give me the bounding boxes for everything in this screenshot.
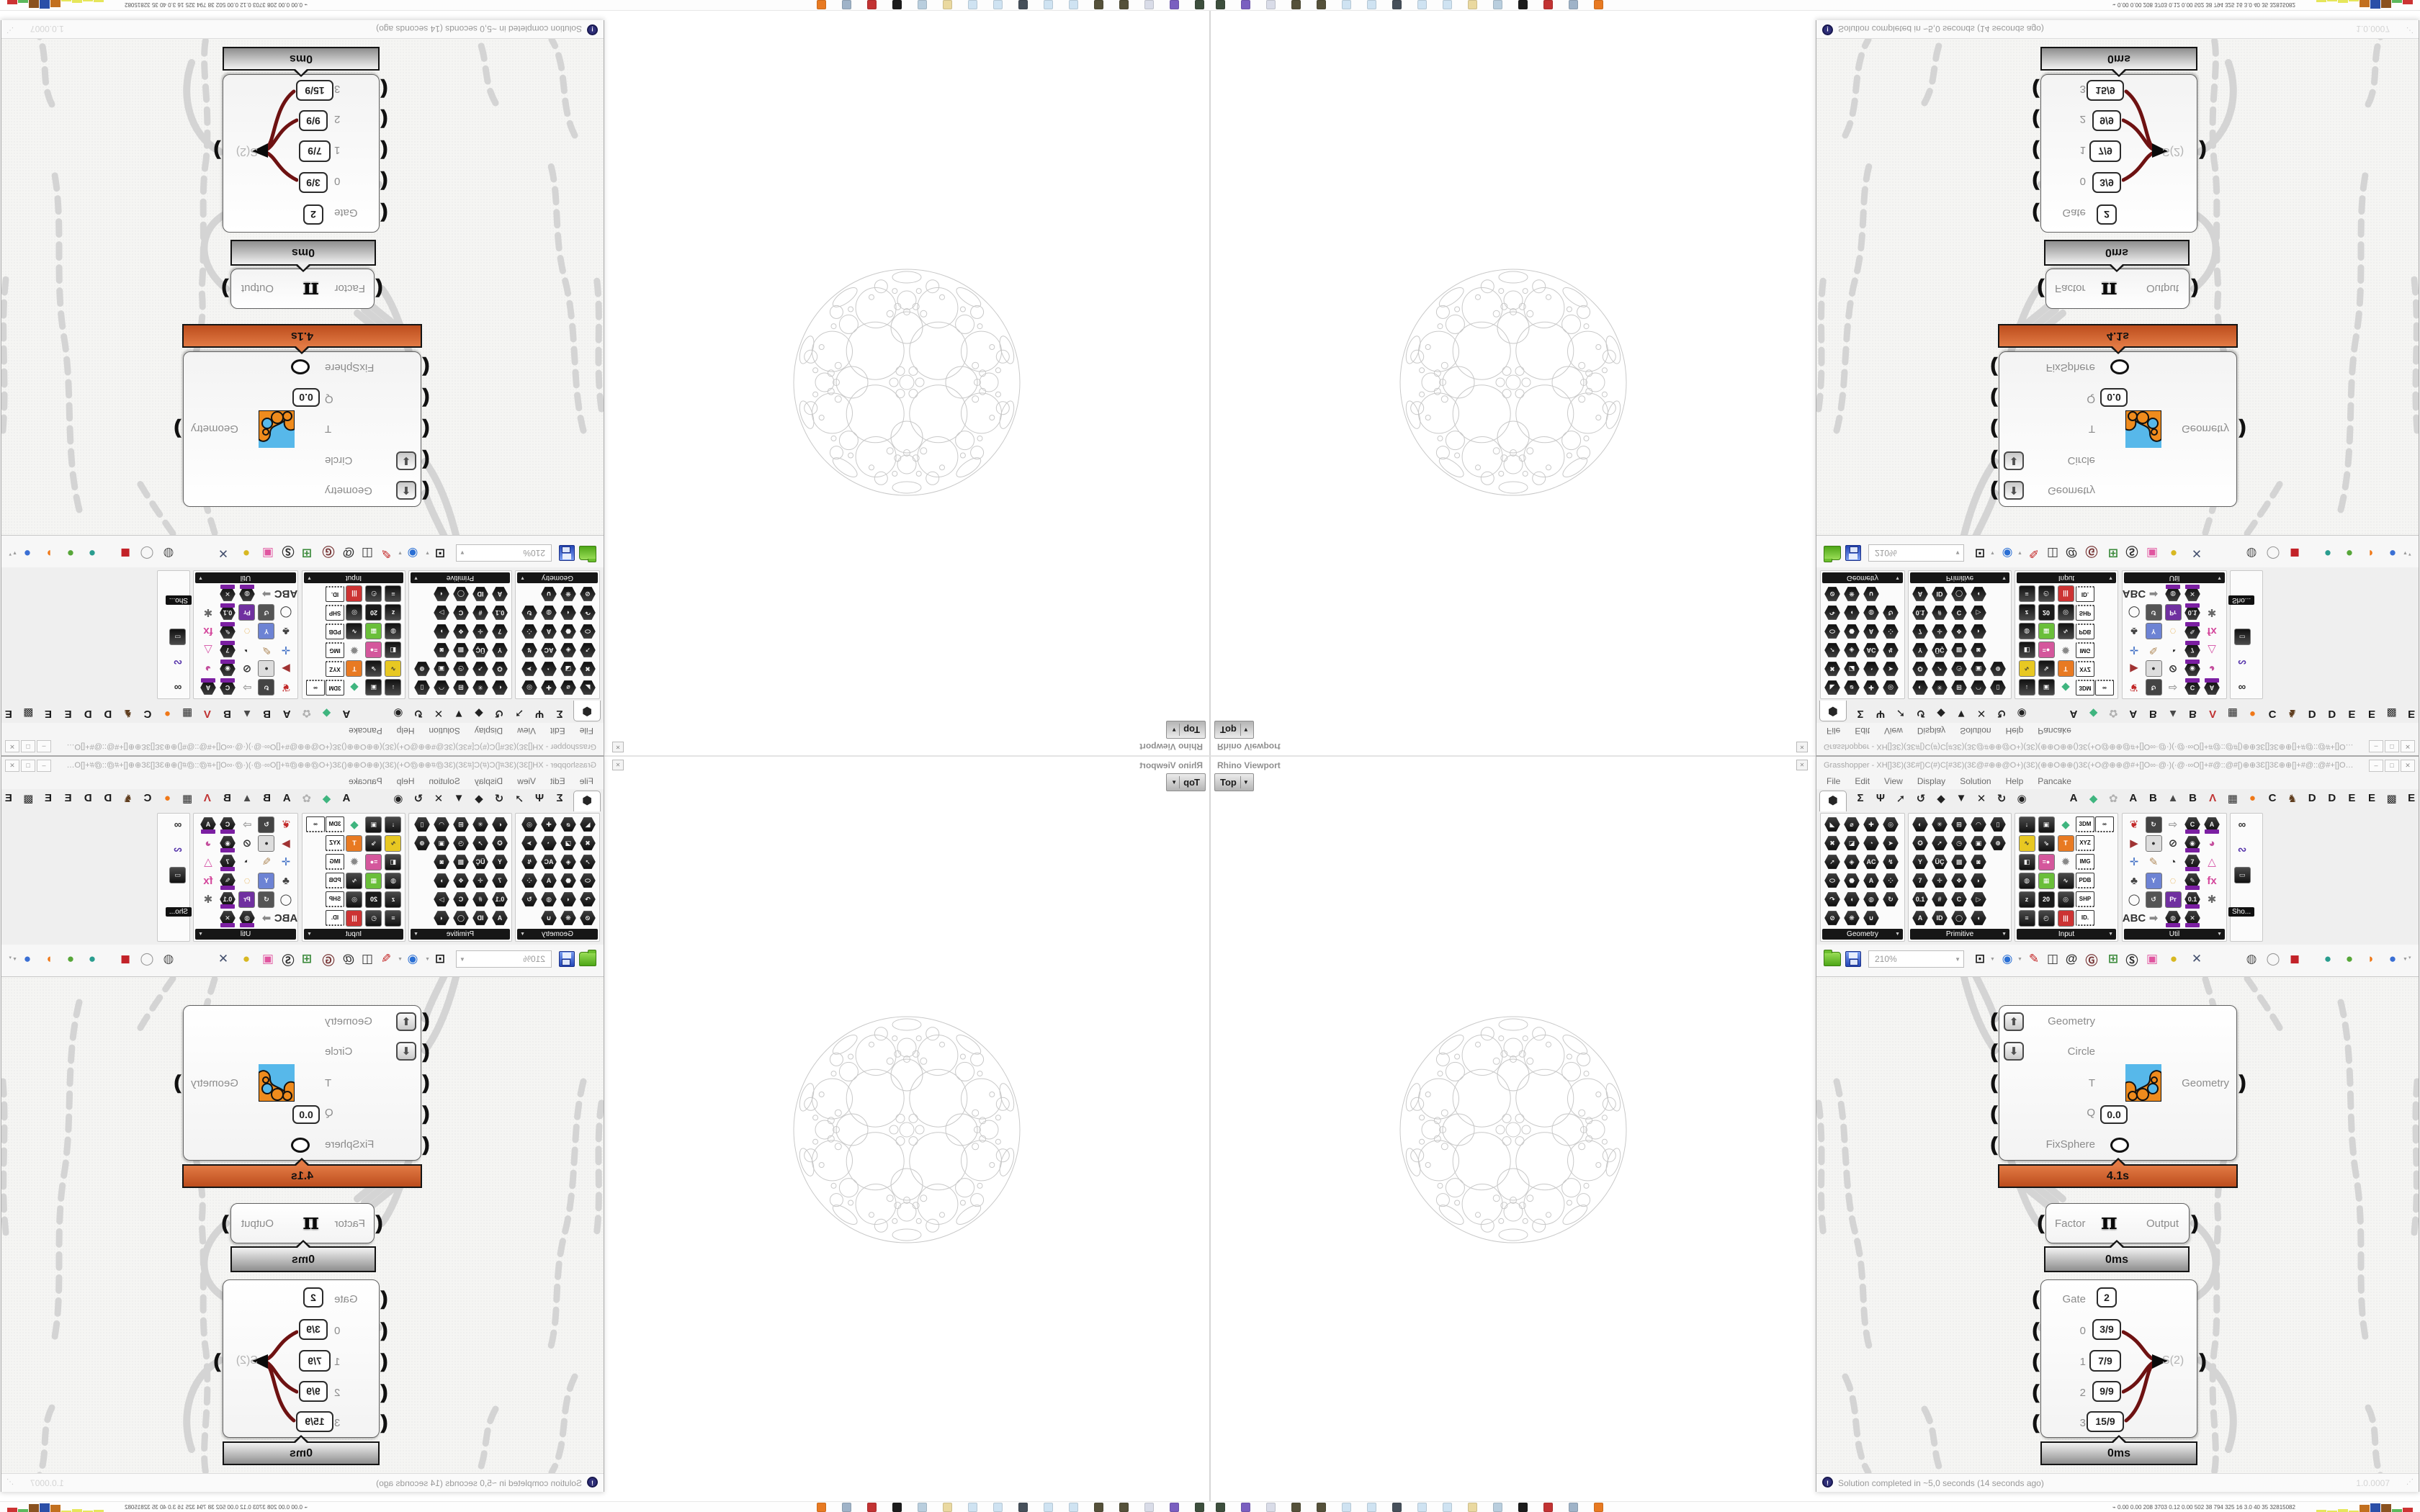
gate-input-jack-0[interactable]: ( bbox=[2033, 174, 2039, 191]
component-icon[interactable]: ❋ bbox=[559, 909, 578, 927]
display-teal-icon[interactable]: ● bbox=[84, 544, 101, 562]
component-icon[interactable]: 3DM bbox=[2076, 678, 2094, 697]
component-icon[interactable]: ≡ bbox=[384, 585, 403, 603]
input-jack-q[interactable]: ( bbox=[423, 390, 429, 408]
gate-output-jack[interactable]: ) bbox=[2200, 1352, 2206, 1369]
component-icon[interactable]: C bbox=[2183, 678, 2202, 697]
component-icon[interactable]: ◪ bbox=[1842, 660, 1861, 678]
grasshopper-canvas[interactable]: ( ( ( ( ( ⬆ ⬇ Geometry Circle T Q FixSph… bbox=[1816, 38, 2419, 536]
component-icon[interactable]: ♣ bbox=[2125, 622, 2143, 641]
component-icon[interactable]: =● bbox=[364, 852, 383, 871]
component-icon[interactable]: ID. bbox=[2076, 585, 2094, 603]
maximize-button[interactable]: □ bbox=[21, 760, 35, 772]
component-icon[interactable]: XYZ bbox=[2076, 834, 2094, 852]
component-icon[interactable]: ✹ bbox=[345, 641, 364, 660]
component-icon[interactable]: ◍ bbox=[539, 890, 558, 909]
component-icon[interactable]: Pr bbox=[238, 603, 256, 622]
component-icon[interactable]: ⊘ bbox=[238, 834, 256, 852]
component-icon[interactable]: ➡ bbox=[257, 909, 276, 927]
component-icon[interactable]: ||| bbox=[345, 909, 364, 927]
unknown-package-icon[interactable]: ▣ bbox=[2143, 950, 2161, 968]
tab-plugin-9[interactable]: ● bbox=[2243, 792, 2262, 804]
component-icon[interactable]: ▭ bbox=[2233, 865, 2251, 884]
preview-wire-icon[interactable]: ◯ bbox=[138, 544, 156, 562]
gate-value-capsule[interactable]: 2 bbox=[2097, 1287, 2117, 1308]
component-icon[interactable]: ◧ bbox=[2017, 641, 2036, 660]
component-icon[interactable]: ✛ bbox=[277, 852, 295, 871]
component-icon[interactable]: ⊘ bbox=[2164, 660, 2182, 678]
component-icon[interactable]: ✪ bbox=[1911, 660, 1930, 678]
component-icon[interactable]: ◧ bbox=[384, 852, 403, 871]
tab-plugin-9[interactable]: ● bbox=[158, 708, 177, 720]
component-icon[interactable]: ÜÇ bbox=[471, 641, 490, 660]
component-icon[interactable]: ◣ bbox=[1823, 815, 1842, 834]
toolbar-overflow-icon[interactable]: ▾ bbox=[9, 552, 12, 557]
script-app-icon[interactable] bbox=[1266, 1503, 1276, 1512]
component-icon[interactable]: ◆ bbox=[2056, 815, 2075, 834]
input-jack-q[interactable]: ( bbox=[1991, 390, 1997, 408]
component-icon[interactable]: ● bbox=[257, 660, 276, 678]
tab-plugin-13[interactable]: D bbox=[2323, 708, 2341, 720]
menu-display[interactable]: Display bbox=[467, 723, 510, 737]
toolbar-overflow-icon[interactable]: ▾ bbox=[2408, 552, 2411, 557]
component-icon[interactable]: 7 bbox=[1911, 622, 1930, 641]
gate-input-jack-2[interactable]: ( bbox=[381, 112, 387, 129]
minimize-button[interactable]: – bbox=[2369, 740, 2383, 752]
save-file-icon[interactable] bbox=[1845, 545, 1861, 561]
component-icon[interactable]: ➤ bbox=[1881, 834, 1900, 852]
component-icon[interactable]: ◖ bbox=[1842, 890, 1861, 909]
tab-standard-4[interactable]: ◆ bbox=[470, 792, 488, 805]
component-icon[interactable]: ↺ bbox=[2144, 890, 2163, 909]
component-icon[interactable]: ▯ bbox=[413, 678, 431, 697]
component-icon[interactable]: PDB bbox=[326, 622, 344, 641]
component-icon[interactable]: ✪ bbox=[490, 834, 509, 852]
component-icon[interactable]: Y bbox=[2144, 871, 2163, 890]
component-icon[interactable]: ∿ bbox=[384, 834, 403, 852]
component-icon[interactable]: ✹ bbox=[2056, 641, 2075, 660]
component-icon[interactable]: ▭ bbox=[169, 865, 187, 884]
menu-solution[interactable]: Solution bbox=[1953, 775, 1998, 789]
component-icon[interactable]: ↓ bbox=[2017, 815, 2036, 834]
tab-plugin-11[interactable]: ♞ bbox=[118, 792, 137, 805]
app-dark-icon[interactable] bbox=[1195, 1503, 1204, 1512]
monitor-app-icon[interactable] bbox=[1392, 1503, 1402, 1512]
component-icon[interactable]: PDB bbox=[2076, 871, 2094, 890]
gallery-icon[interactable]: ⊞ bbox=[298, 544, 315, 562]
component-icon[interactable]: ✕ bbox=[2183, 909, 2202, 927]
component-icon[interactable]: C bbox=[1950, 603, 1968, 622]
notepad-3-icon[interactable] bbox=[993, 1503, 1003, 1512]
component-icon[interactable]: ↓ bbox=[384, 678, 403, 697]
component-icon[interactable]: △ bbox=[2202, 641, 2221, 660]
menu-file[interactable]: File bbox=[573, 775, 601, 789]
component-icon[interactable]: ◗ bbox=[1969, 871, 1988, 890]
grasshopper-titlebar[interactable]: Grasshopper - XH[]3Ɛ)(3Ɛ#[)C(#)C[#3Ɛ)(3Ɛ… bbox=[1816, 757, 2419, 775]
preview-shaded-icon[interactable]: ◼ bbox=[117, 950, 134, 968]
ribbon-group-label[interactable]: Primitive▼ bbox=[1910, 572, 2009, 583]
component-icon[interactable]: ✖ bbox=[578, 834, 597, 852]
factor-input-jack[interactable]: ( bbox=[376, 281, 382, 298]
component-icon[interactable]: ✎ bbox=[2144, 852, 2163, 871]
component-icon[interactable]: AC bbox=[1862, 641, 1881, 660]
tab-plugin-5[interactable]: ▲ bbox=[238, 792, 256, 804]
menu-view[interactable]: View bbox=[510, 723, 543, 737]
close-button[interactable]: ✕ bbox=[5, 740, 19, 752]
component-icon[interactable]: ◖ bbox=[559, 890, 578, 909]
component-icon[interactable]: ◧ bbox=[2017, 852, 2036, 871]
component-icon[interactable]: ▷ bbox=[1969, 603, 1988, 622]
tab-standard-3[interactable]: ↺ bbox=[1912, 707, 1930, 720]
menu-help[interactable]: Help bbox=[390, 723, 422, 737]
component-icon[interactable]: ↷ bbox=[578, 890, 597, 909]
notepad-1-icon[interactable] bbox=[1342, 1503, 1351, 1512]
expression-down-button[interactable]: ⬇ bbox=[396, 1042, 416, 1061]
component-icon[interactable]: ◙ bbox=[432, 641, 451, 660]
component-icon[interactable]: Y bbox=[490, 852, 509, 871]
contrast-app-icon[interactable] bbox=[892, 0, 902, 9]
menu-pancake[interactable]: Pancake bbox=[2030, 775, 2079, 789]
tab-plugin-5[interactable]: ▲ bbox=[2164, 792, 2182, 804]
zoom-level-selector[interactable]: 210%▼ bbox=[1868, 544, 1964, 562]
factor-pi-node[interactable]: ( Factor π Output ) bbox=[230, 269, 375, 309]
script-app-icon[interactable] bbox=[1144, 1503, 1154, 1512]
component-icon[interactable]: ◖ bbox=[1969, 585, 1988, 603]
tab-params-selected[interactable]: ⬢ bbox=[573, 791, 601, 812]
component-icon[interactable]: ◯ bbox=[2125, 890, 2143, 909]
save64-app-icon[interactable] bbox=[1170, 0, 1179, 9]
gate-input-jack-3[interactable]: ( bbox=[381, 1413, 387, 1431]
component-icon[interactable]: ↺ bbox=[257, 890, 276, 909]
component-icon[interactable]: ▦ bbox=[2037, 622, 2056, 641]
exposé-icon[interactable]: ◫ bbox=[2044, 544, 2061, 562]
component-icon[interactable]: A bbox=[539, 622, 558, 641]
component-icon[interactable]: ÜÇ bbox=[1930, 641, 1949, 660]
component-icon[interactable]: ✚ bbox=[1862, 678, 1881, 697]
viewport-close-button[interactable]: ✕ bbox=[612, 760, 624, 770]
component-icon[interactable]: 7 bbox=[490, 622, 509, 641]
tab-params-selected[interactable]: ⬢ bbox=[1819, 700, 1847, 721]
input-jack-geometry[interactable]: ( bbox=[1991, 1012, 1997, 1029]
component-icon[interactable]: 0.1 bbox=[1911, 890, 1930, 909]
preview-shaded-icon[interactable]: ◼ bbox=[2286, 544, 2303, 562]
tab-plugin-0[interactable]: A bbox=[337, 708, 356, 720]
display-blue-icon[interactable]: ● bbox=[19, 544, 36, 562]
remote-panel-icon[interactable]: @ bbox=[340, 950, 357, 968]
tab-plugin-4[interactable]: B bbox=[258, 708, 277, 720]
component-icon[interactable]: △ bbox=[2202, 852, 2221, 871]
gate-row2-capsule[interactable]: 9/9 bbox=[299, 1381, 328, 1402]
component-icon[interactable]: ◯ bbox=[277, 890, 295, 909]
component-icon[interactable]: 20 bbox=[364, 890, 383, 909]
component-icon[interactable]: 7 bbox=[218, 641, 237, 660]
menu-file[interactable]: File bbox=[1819, 723, 1847, 737]
component-icon[interactable]: Y bbox=[1911, 641, 1930, 660]
tab-plugin-15[interactable]: E bbox=[39, 792, 58, 804]
factor-output-jack[interactable]: ) bbox=[2192, 1214, 2198, 1231]
tab-plugin-8[interactable]: ▦ bbox=[2223, 792, 2242, 805]
preview-shaded-icon[interactable]: ◼ bbox=[117, 544, 134, 562]
dropdown-icon[interactable]: ▼ bbox=[398, 957, 403, 962]
red-app-icon[interactable] bbox=[1543, 0, 1553, 9]
component-icon[interactable]: ◠ bbox=[432, 815, 451, 834]
ribbon-group-label[interactable]: Input▼ bbox=[2017, 929, 2116, 940]
component-icon[interactable]: ✛ bbox=[2125, 852, 2143, 871]
tab-plugin-8[interactable]: ▦ bbox=[2223, 707, 2242, 720]
component-icon[interactable]: ↷ bbox=[578, 603, 597, 622]
component-icon[interactable]: ◌ bbox=[238, 871, 256, 890]
calculator-app-icon[interactable] bbox=[1569, 0, 1578, 9]
save-file-icon[interactable] bbox=[559, 545, 575, 561]
ribbon-group-label[interactable]: Geometry▼ bbox=[517, 572, 598, 583]
component-icon[interactable]: ⊕ bbox=[1989, 834, 2007, 852]
component-icon[interactable]: 0.1 bbox=[2183, 603, 2202, 622]
tab-standard-3[interactable]: ↺ bbox=[490, 707, 508, 720]
component-icon[interactable]: ◙ bbox=[1969, 641, 1988, 660]
component-icon[interactable]: ||| bbox=[345, 585, 364, 603]
component-icon[interactable]: ▦ bbox=[364, 871, 383, 890]
component-icon[interactable]: ÜÇ bbox=[471, 852, 490, 871]
component-icon[interactable]: ▣ bbox=[1969, 660, 1988, 678]
component-icon[interactable]: z bbox=[2017, 890, 2036, 909]
component-icon[interactable]: ◕ bbox=[2202, 834, 2221, 852]
grasshopper-a-icon[interactable] bbox=[1291, 0, 1301, 9]
component-icon[interactable]: A bbox=[1862, 871, 1881, 890]
component-icon[interactable]: ✛ bbox=[471, 622, 490, 641]
minimize-button[interactable]: – bbox=[37, 740, 51, 752]
menu-display[interactable]: Display bbox=[1910, 775, 1953, 789]
component-icon[interactable]: ✖ bbox=[1823, 834, 1842, 852]
component-icon[interactable]: ◉ bbox=[2183, 834, 2202, 852]
component-icon[interactable]: fx bbox=[199, 622, 218, 641]
component-icon[interactable]: ⊞ bbox=[1950, 678, 1968, 697]
component-icon[interactable]: ÜÇ bbox=[1930, 852, 1949, 871]
dropdown-icon[interactable]: ▼ bbox=[425, 550, 430, 555]
tab-plugin-16[interactable]: ▩ bbox=[2383, 707, 2401, 720]
component-icon[interactable]: 20 bbox=[2037, 890, 2056, 909]
component-icon[interactable]: ▣ bbox=[1969, 834, 1988, 852]
component-icon[interactable]: A bbox=[490, 909, 509, 927]
factor-pi-node[interactable]: ( Factor π Output ) bbox=[2045, 269, 2190, 309]
gate-row0-capsule[interactable]: 3/9 bbox=[2092, 1319, 2121, 1340]
component-icon[interactable]: ◗ bbox=[1969, 622, 1988, 641]
component-icon[interactable]: ⇘ bbox=[2037, 834, 2056, 852]
exposé-icon[interactable]: ◫ bbox=[359, 950, 376, 968]
component-icon[interactable]: ∞ bbox=[2095, 815, 2114, 834]
component-icon[interactable]: ↯ bbox=[1881, 641, 1900, 660]
display-green-icon[interactable]: ● bbox=[62, 950, 79, 968]
q-value-capsule[interactable]: 0.0 bbox=[292, 388, 320, 407]
tab-plugin-10[interactable]: C bbox=[138, 708, 157, 720]
component-icon[interactable]: ▷ bbox=[1969, 890, 1988, 909]
gate-output-jack[interactable]: ) bbox=[2200, 143, 2206, 160]
search-icon[interactable]: Ⓢ bbox=[2123, 950, 2141, 968]
component-icon[interactable]: ↻ bbox=[2144, 678, 2163, 697]
component-icon[interactable]: ◪ bbox=[1842, 834, 1861, 852]
component-icon[interactable]: =● bbox=[2037, 641, 2056, 660]
component-icon[interactable]: ◔ bbox=[1862, 834, 1881, 852]
tab-plugin-12[interactable]: D bbox=[99, 792, 117, 804]
save64-app-icon[interactable] bbox=[1241, 0, 1250, 9]
fixsphere-toggle[interactable] bbox=[291, 1138, 310, 1153]
component-icon[interactable]: ID. bbox=[2076, 909, 2094, 927]
tab-plugin-16[interactable]: ▩ bbox=[2383, 792, 2401, 805]
component-icon[interactable]: XYZ bbox=[326, 660, 344, 678]
component-icon[interactable]: 0.1 bbox=[490, 603, 509, 622]
gate-row0-capsule[interactable]: 3/9 bbox=[2092, 172, 2121, 193]
component-icon[interactable]: 0.1 bbox=[218, 890, 237, 909]
grasshopper-titlebar[interactable]: Grasshopper - XH[]3Ɛ)(3Ɛ#[)C(#)C[#3Ɛ)(3Ɛ… bbox=[1816, 737, 2419, 755]
zoom-extents-icon[interactable]: ⊡ bbox=[431, 950, 449, 968]
component-icon[interactable]: ➤ bbox=[520, 660, 539, 678]
grasshopper-b-icon[interactable] bbox=[1094, 0, 1103, 9]
component-icon[interactable]: ◴ bbox=[364, 585, 383, 603]
notepad-3-icon[interactable] bbox=[1417, 0, 1427, 9]
notepad-1-icon[interactable] bbox=[1342, 0, 1351, 9]
component-icon[interactable]: ∪ bbox=[1862, 585, 1881, 603]
component-icon[interactable]: ▩ bbox=[1950, 852, 1968, 871]
tab-plugin-10[interactable]: C bbox=[2263, 792, 2282, 804]
red-app-icon[interactable] bbox=[867, 1503, 877, 1512]
component-icon[interactable]: ↯ bbox=[520, 852, 539, 871]
tab-standard-6[interactable]: ✕ bbox=[429, 792, 448, 805]
component-icon[interactable]: ◖ bbox=[1969, 909, 1988, 927]
tab-plugin-6[interactable]: B bbox=[2184, 708, 2202, 720]
component-icon[interactable]: ◔ bbox=[539, 660, 558, 678]
input-jack-q[interactable]: ( bbox=[423, 1104, 429, 1122]
component-icon[interactable]: ◆ bbox=[345, 815, 364, 834]
display-orange-icon[interactable]: ◗ bbox=[40, 544, 58, 562]
component-icon[interactable]: ⌀ bbox=[1842, 678, 1861, 697]
save64-app-icon[interactable] bbox=[1170, 1503, 1179, 1512]
grasshopper-b-icon[interactable] bbox=[1317, 1503, 1326, 1512]
gate-row1-capsule-selected[interactable]: 7/9 bbox=[299, 140, 331, 162]
tab-params-selected[interactable]: ⬢ bbox=[573, 700, 601, 721]
component-icon[interactable]: ➚ bbox=[578, 641, 597, 660]
component-icon[interactable]: ↯ bbox=[1881, 852, 1900, 871]
tab-plugin-3[interactable]: A bbox=[2124, 792, 2143, 804]
tab-plugin-16[interactable]: ▩ bbox=[19, 707, 37, 720]
component-icon[interactable]: PDB bbox=[2076, 622, 2094, 641]
notepad-2-icon[interactable] bbox=[1044, 1503, 1053, 1512]
component-icon[interactable]: ||| bbox=[2056, 909, 2075, 927]
component-icon[interactable]: ↺ bbox=[257, 603, 276, 622]
component-icon[interactable]: ◯ bbox=[452, 585, 470, 603]
component-icon[interactable]: # bbox=[471, 603, 490, 622]
preview-eye-icon[interactable]: ◉ bbox=[1999, 950, 2016, 968]
component-icon[interactable]: IMG bbox=[2076, 641, 2094, 660]
remote-panel-icon[interactable]: @ bbox=[2063, 950, 2080, 968]
tab-plugin-6[interactable]: B bbox=[218, 708, 236, 720]
menu-file[interactable]: File bbox=[1819, 775, 1847, 789]
firefox-icon[interactable] bbox=[1594, 1503, 1603, 1512]
fixsphere-node[interactable]: ( ( ( ( ( ⬆ ⬇ Geometry Circle T Q FixSph… bbox=[1999, 351, 2237, 507]
notepad-4-icon[interactable] bbox=[968, 0, 977, 9]
tab-plugin-4[interactable]: B bbox=[2143, 708, 2162, 720]
component-icon[interactable]: ◴ bbox=[2037, 585, 2056, 603]
component-icon[interactable]: ✚ bbox=[1862, 815, 1881, 834]
gallery-icon[interactable]: ⊞ bbox=[2105, 544, 2122, 562]
component-icon[interactable]: ⬭ bbox=[578, 622, 597, 641]
close-button[interactable]: ✕ bbox=[2401, 740, 2415, 752]
menu-edit[interactable]: Edit bbox=[1847, 775, 1877, 789]
component-icon[interactable]: ⬣ bbox=[1842, 622, 1861, 641]
notepad-4-icon[interactable] bbox=[1443, 0, 1452, 9]
component-icon[interactable]: ◌ bbox=[2164, 871, 2182, 890]
component-icon[interactable]: 20 bbox=[364, 603, 383, 622]
component-icon[interactable]: ▣ bbox=[432, 660, 451, 678]
grasshopper-b-icon[interactable] bbox=[1094, 1503, 1103, 1512]
factor-input-jack[interactable]: ( bbox=[2038, 1214, 2044, 1231]
menu-display[interactable]: Display bbox=[1910, 723, 1953, 737]
component-icon[interactable]: ◉ bbox=[218, 834, 237, 852]
gha-assembly-icon[interactable]: Ⓖ bbox=[320, 544, 337, 562]
component-icon[interactable]: SHP bbox=[326, 603, 344, 622]
component-icon[interactable]: ⁘ bbox=[520, 622, 539, 641]
tab-standard-3[interactable]: ↺ bbox=[490, 792, 508, 805]
component-icon[interactable]: Pr bbox=[2164, 890, 2182, 909]
component-icon[interactable]: ABC bbox=[277, 909, 295, 927]
component-icon[interactable]: 3DM bbox=[326, 815, 344, 834]
component-icon[interactable]: ⊘ bbox=[238, 660, 256, 678]
component-icon[interactable]: SHP bbox=[2076, 603, 2094, 622]
component-icon[interactable]: ✹ bbox=[2056, 852, 2075, 871]
factor-input-jack[interactable]: ( bbox=[376, 1214, 382, 1231]
tab-standard-1[interactable]: Ψ bbox=[1871, 792, 1890, 804]
open-file-icon[interactable] bbox=[579, 546, 596, 560]
grasshopper-canvas[interactable]: ( ( ( ( ( ⬆ ⬇ Geometry Circle T Q FixSph… bbox=[1816, 976, 2419, 1474]
component-icon[interactable]: ⊘ bbox=[578, 909, 597, 927]
component-icon[interactable]: A bbox=[199, 678, 218, 697]
component-icon[interactable]: ▶ bbox=[277, 834, 295, 852]
tab-standard-5[interactable]: ▼ bbox=[1952, 792, 1971, 804]
remote-panel-icon[interactable]: @ bbox=[2063, 544, 2080, 562]
component-icon[interactable]: ✎ bbox=[257, 641, 276, 660]
component-icon[interactable]: ❖ bbox=[452, 622, 470, 641]
tab-standard-1[interactable]: Ψ bbox=[1871, 708, 1890, 720]
component-icon[interactable]: ↻ bbox=[1881, 603, 1900, 622]
gate-input-jack-3[interactable]: ( bbox=[381, 81, 387, 99]
tab-standard-6[interactable]: ✕ bbox=[1972, 792, 1991, 805]
component-icon[interactable]: =● bbox=[364, 641, 383, 660]
component-icon[interactable]: ◕ bbox=[199, 660, 218, 678]
component-icon[interactable]: ❦ bbox=[2125, 678, 2143, 697]
component-icon[interactable]: ✛ bbox=[1930, 871, 1949, 890]
component-icon[interactable]: ➚ bbox=[1823, 852, 1842, 871]
component-icon[interactable]: ↻ bbox=[2144, 815, 2163, 834]
tab-plugin-14[interactable]: E bbox=[2342, 708, 2361, 720]
component-icon[interactable]: ◔ bbox=[539, 834, 558, 852]
search-icon[interactable]: Ⓢ bbox=[2123, 544, 2141, 562]
component-icon[interactable]: ⊕ bbox=[413, 660, 431, 678]
component-icon[interactable]: ⊕ bbox=[1989, 660, 2007, 678]
component-icon[interactable]: ∿ bbox=[2056, 622, 2075, 641]
component-icon[interactable]: ⊘ bbox=[1823, 909, 1842, 927]
component-icon[interactable]: Y bbox=[257, 622, 276, 641]
component-icon[interactable]: ◍ bbox=[384, 871, 403, 890]
component-icon[interactable]: ➚ bbox=[1823, 641, 1842, 660]
component-icon[interactable]: AC bbox=[539, 641, 558, 660]
tab-plugin-11[interactable]: ♞ bbox=[2283, 792, 2302, 805]
component-icon[interactable]: ◣ bbox=[578, 678, 597, 697]
component-icon[interactable]: ⊘ bbox=[578, 585, 597, 603]
tab-plugin-14[interactable]: E bbox=[59, 708, 78, 720]
menu-pancake[interactable]: Pancake bbox=[341, 775, 390, 789]
tab-standard-7[interactable]: ↻ bbox=[1992, 707, 2011, 720]
preview-off-icon[interactable]: ◍ bbox=[160, 544, 177, 562]
tab-plugin-6[interactable]: B bbox=[218, 792, 236, 804]
zoom-level-selector[interactable]: 210%▼ bbox=[456, 544, 552, 562]
